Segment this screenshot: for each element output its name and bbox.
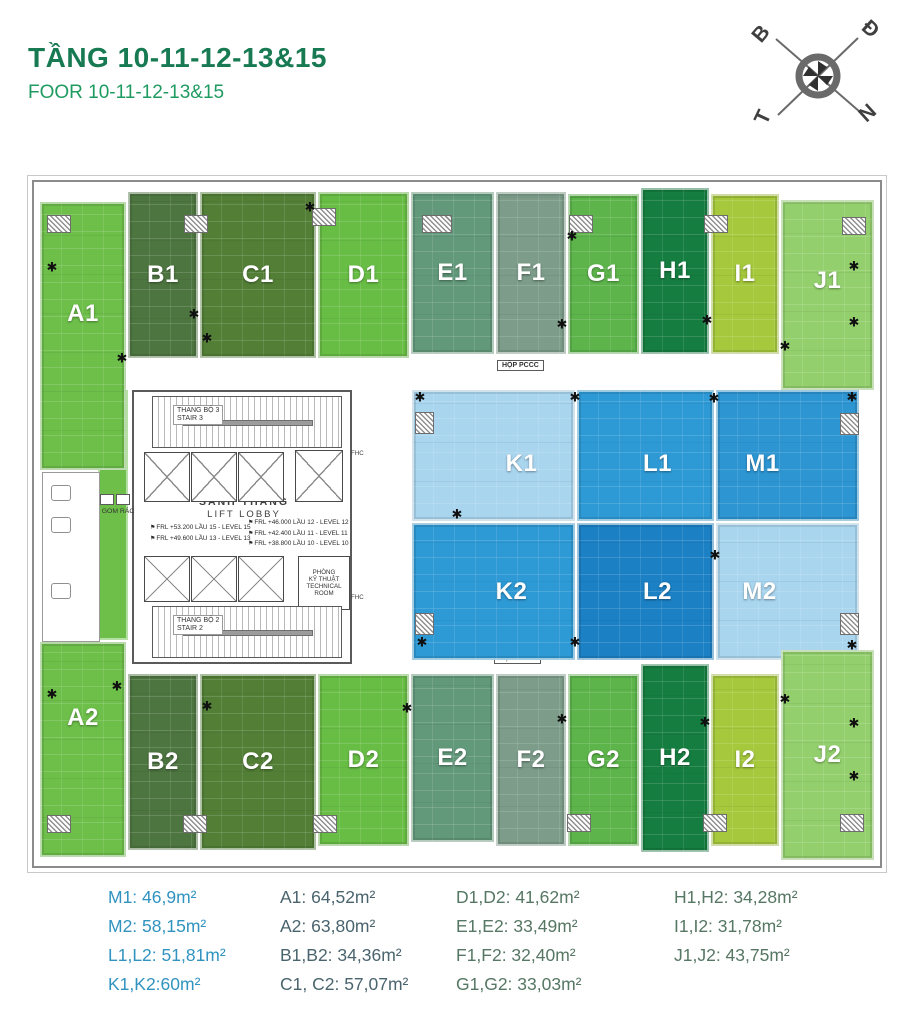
legend-column-4: H1,H2: 34,28m²I1,I2: 31,78m²J1,J2: 43,75… (674, 888, 798, 975)
balcony-hatch (842, 217, 866, 235)
legend-item: L1,L2: 51,81m² (108, 946, 226, 965)
structural-column-icon: ✱ (849, 717, 860, 730)
level-annotation-text: FRL +46.000 LẦU 12 - LEVEL 12 (254, 519, 348, 526)
level-flag-icon: ⚑ (150, 536, 155, 542)
stair-2-label-vi: THANG BỘ 2 (177, 617, 219, 625)
structural-column-icon: ✱ (710, 549, 721, 562)
unit-label-A1: A1 (67, 300, 99, 328)
structural-column-icon: ✱ (557, 713, 568, 726)
balcony-hatch (313, 815, 337, 833)
unit-label-M1: M1 (745, 450, 779, 478)
structural-column-icon: ✱ (700, 716, 711, 729)
legend-column-2: A1: 64,52m²A2: 63,80m²B1,B2: 34,36m²C1, … (280, 888, 408, 1004)
fire-hose-cabinet-label: FHC (351, 594, 364, 601)
elevator-cell (191, 452, 237, 502)
level-flag-icon: ⚑ (150, 525, 155, 531)
unit-K2: K2 (412, 523, 575, 660)
structural-column-icon: ✱ (847, 391, 858, 404)
structural-column-icon: ✱ (452, 508, 463, 521)
unit-label-F2: F2 (516, 746, 545, 774)
unit-C1: C1 (200, 192, 316, 358)
structural-column-icon: ✱ (709, 392, 720, 405)
legend-item: H1,H2: 34,28m² (674, 888, 798, 907)
stair-2-label-en: STAIR 2 (177, 625, 219, 633)
page: TẦNG 10-11-12-13&15 FOOR 10-11-12-13&15 … (0, 0, 900, 1032)
unit-label-D2: D2 (348, 746, 380, 774)
structural-column-icon: ✱ (112, 680, 123, 693)
level-flag-icon: ⚑ (248, 531, 253, 537)
technical-room-label: ROOM (314, 590, 333, 597)
structural-column-icon: ✱ (849, 770, 860, 783)
elevator-cell (191, 556, 237, 602)
legend-item: D1,D2: 41,62m² (456, 888, 581, 907)
building-core: THANG BỘ 3 STAIR 3 SẢNH THANG LIFT LOBBY… (132, 390, 352, 664)
elevator-cell (144, 452, 190, 502)
unit-F2: F2 (496, 674, 566, 846)
unit-label-L1: L1 (643, 450, 672, 478)
legend-item: A2: 63,80m² (280, 917, 408, 936)
compass-south-label: N (854, 100, 881, 127)
unit-label-M2: M2 (742, 578, 776, 606)
unit-label-F1: F1 (516, 259, 545, 287)
unit-L1: L1 (577, 390, 714, 521)
structural-column-icon: ✱ (47, 688, 58, 701)
balcony-hatch (415, 412, 434, 434)
technical-room-label: KỸ THUẬT (309, 576, 339, 583)
stair-2: THANG BỘ 2 STAIR 2 (152, 606, 342, 658)
stair-3-label: THANG BỘ 3 STAIR 3 (173, 405, 223, 425)
structural-column-icon: ✱ (702, 314, 713, 327)
unit-label-K2: K2 (496, 578, 528, 606)
level-annotation: ⚑FRL +38.800 LẦU 10 - LEVEL 10 (248, 539, 349, 550)
unit-E2: E2 (411, 674, 494, 842)
balcony-hatch (567, 814, 591, 832)
level-annotation: ⚑FRL +46.000 LẦU 12 - LEVEL 12 (248, 518, 349, 529)
unit-label-C1: C1 (242, 261, 274, 289)
compass-east-label: Đ (857, 16, 884, 43)
structural-column-icon: ✱ (849, 316, 860, 329)
structural-column-icon: ✱ (780, 693, 791, 706)
balcony-hatch (183, 815, 207, 833)
legend-item: I1,I2: 31,78m² (674, 917, 798, 936)
unit-label-G2: G2 (587, 746, 620, 774)
level-annotations-left: ⚑FRL +53.200 LẦU 15 - LEVEL 15⚑FRL +49.6… (150, 523, 251, 544)
fire-box-label-top: HỘP PCCC (497, 360, 544, 371)
balcony-hatch (840, 413, 859, 435)
legend-item: M1: 46,9m² (108, 888, 226, 907)
unit-label-E1: E1 (437, 259, 467, 287)
unit-M1: M1 (716, 390, 859, 521)
structural-column-icon: ✱ (189, 308, 200, 321)
balcony-hatch (415, 613, 434, 635)
unit-label-H1: H1 (659, 257, 691, 285)
legend-item: G1,G2: 33,03m² (456, 975, 581, 994)
legend-item: F1,F2: 32,40m² (456, 946, 581, 965)
level-annotation-text: FRL +42.400 LẦU 11 - LEVEL 11 (254, 530, 347, 537)
unit-A1: A1 (40, 202, 126, 470)
stair-3-label-en: STAIR 3 (177, 415, 219, 423)
level-annotation: ⚑FRL +53.200 LẦU 15 - LEVEL 15 (150, 523, 251, 534)
wc-fixture-icon (51, 517, 71, 533)
balcony-hatch (422, 215, 452, 233)
balcony-hatch (840, 613, 859, 635)
unit-M2: M2 (716, 523, 859, 660)
legend-item: E1,E2: 33,49m² (456, 917, 581, 936)
unit-label-I1: I1 (734, 260, 755, 288)
compass-north-label: B (747, 21, 774, 47)
unit-label-G1: G1 (587, 260, 620, 288)
unit-H1: H1 (641, 188, 709, 354)
structural-column-icon: ✱ (849, 260, 860, 273)
structural-column-icon: ✱ (780, 340, 791, 353)
trash-chute-icon (116, 494, 130, 505)
level-flag-icon: ⚑ (248, 520, 253, 526)
elevator-cell (295, 450, 343, 502)
unit-label-B2: B2 (147, 748, 179, 776)
wc-area (42, 472, 100, 642)
level-annotation: ⚑FRL +42.400 LẦU 11 - LEVEL 11 (248, 529, 349, 540)
legend-column-3: D1,D2: 41,62m²E1,E2: 33,49m²F1,F2: 32,40… (456, 888, 581, 1004)
structural-column-icon: ✱ (47, 261, 58, 274)
level-annotation-text: FRL +53.200 LẦU 15 - LEVEL 15 (156, 524, 250, 531)
technical-room-label: PHÒNG (313, 569, 336, 576)
unit-label-H2: H2 (659, 744, 691, 772)
structural-column-icon: ✱ (202, 700, 213, 713)
structural-column-icon: ✱ (117, 352, 128, 365)
balcony-hatch (184, 215, 208, 233)
level-annotation: ⚑FRL +49.600 LẦU 13 - LEVEL 13 (150, 534, 251, 545)
legend: M1: 46,9m²M2: 58,15m²L1,L2: 51,81m²K1,K2… (0, 884, 900, 1024)
unit-F1: F1 (496, 192, 566, 354)
unit-K1: K1 (412, 390, 575, 521)
level-annotation-text: FRL +49.600 LẦU 13 - LEVEL 13 (156, 535, 250, 542)
level-flag-icon: ⚑ (248, 541, 253, 547)
legend-item: K1,K2:60m² (108, 975, 226, 994)
elevator-cell (144, 556, 190, 602)
unit-label-I2: I2 (734, 746, 755, 774)
unit-label-C2: C2 (242, 748, 274, 776)
elevator-cell (238, 452, 284, 502)
technical-room-label: TECHNICAL (306, 583, 341, 590)
structural-column-icon: ✱ (557, 318, 568, 331)
balcony-hatch (703, 814, 727, 832)
stair-2-label: THANG BỘ 2 STAIR 2 (173, 615, 223, 635)
unit-L2: L2 (577, 523, 714, 660)
legend-item: M2: 58,15m² (108, 917, 226, 936)
stair-3: THANG BỘ 3 STAIR 3 (152, 396, 342, 448)
unit-label-D1: D1 (348, 261, 380, 289)
level-annotation-text: FRL +38.800 LẦU 10 - LEVEL 10 (254, 540, 348, 547)
legend-item: A1: 64,52m² (280, 888, 408, 907)
wc-fixture-icon (51, 485, 71, 501)
structural-column-icon: ✱ (202, 332, 213, 345)
structural-column-icon: ✱ (415, 391, 426, 404)
balcony-hatch (312, 208, 336, 226)
unit-label-K1: K1 (506, 450, 538, 478)
compass-rose-icon: B Đ N T (738, 12, 890, 136)
structural-column-icon: ✱ (305, 201, 316, 214)
fire-hose-cabinet-label: FHC (351, 450, 364, 457)
floor-subtitle: FOOR 10-11-12-13&15 (28, 82, 224, 104)
floor-plan: THANG BỘ 3 STAIR 3 SẢNH THANG LIFT LOBBY… (32, 180, 882, 868)
wc-fixture-icon (51, 583, 71, 599)
balcony-hatch (704, 215, 728, 233)
structural-column-icon: ✱ (847, 639, 858, 652)
legend-column-1: M1: 46,9m²M2: 58,15m²L1,L2: 51,81m²K1,K2… (108, 888, 226, 1004)
structural-column-icon: ✱ (402, 702, 413, 715)
unit-H2: H2 (641, 664, 709, 852)
compass-west-label: T (750, 106, 776, 128)
unit-C2: C2 (200, 674, 316, 850)
unit-label-B1: B1 (147, 261, 179, 289)
structural-column-icon: ✱ (417, 636, 428, 649)
unit-label-J2: J2 (814, 741, 842, 769)
unit-label-A2: A2 (67, 704, 99, 732)
trash-chute-icon (100, 494, 114, 505)
structural-column-icon: ✱ (570, 636, 581, 649)
unit-label-J1: J1 (814, 267, 842, 295)
structural-column-icon: ✱ (567, 230, 578, 243)
stair-3-label-vi: THANG BỘ 3 (177, 407, 219, 415)
unit-label-L2: L2 (643, 578, 672, 606)
legend-item: C1, C2: 57,07m² (280, 975, 408, 994)
elevator-cell (238, 556, 284, 602)
level-annotations-right: ⚑FRL +46.000 LẦU 12 - LEVEL 12⚑FRL +42.4… (248, 518, 349, 550)
balcony-hatch (840, 814, 864, 832)
trash-room-label: GOM RÁC (96, 508, 140, 515)
legend-item: J1,J2: 43,75m² (674, 946, 798, 965)
floor-title: TẦNG 10-11-12-13&15 (28, 42, 327, 74)
balcony-hatch (47, 215, 71, 233)
unit-label-E2: E2 (437, 744, 467, 772)
structural-column-icon: ✱ (570, 391, 581, 404)
legend-item: B1,B2: 34,36m² (280, 946, 408, 965)
technical-room: PHÒNG KỸ THUẬT TECHNICAL ROOM (298, 556, 350, 610)
balcony-hatch (47, 815, 71, 833)
